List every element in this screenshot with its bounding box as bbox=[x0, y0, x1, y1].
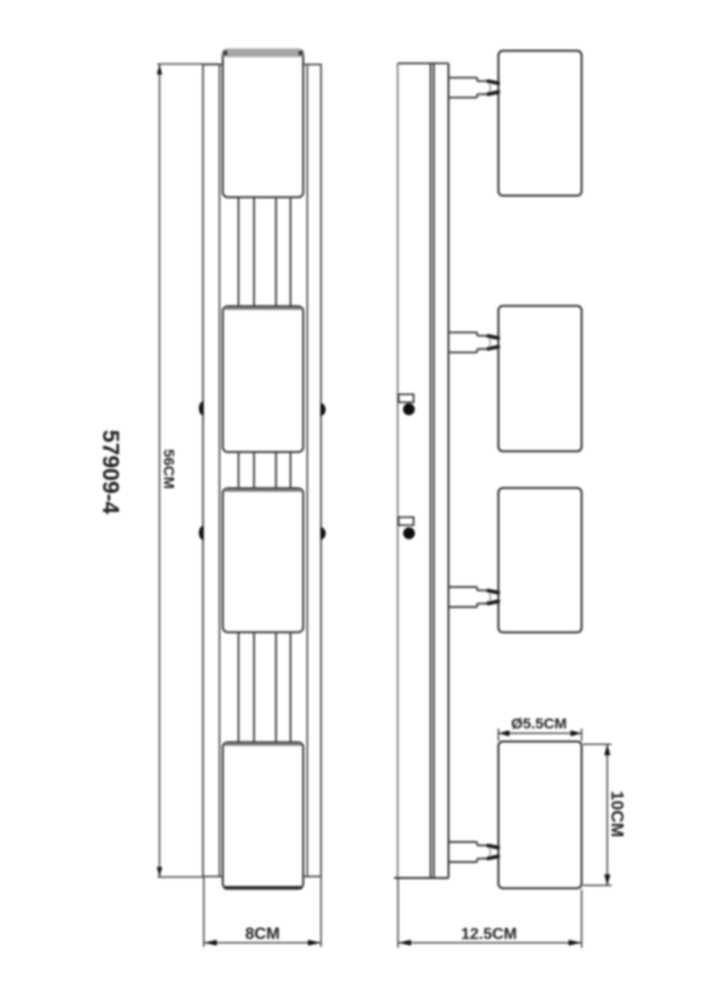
svg-text:12.5CM: 12.5CM bbox=[461, 926, 517, 943]
svg-text:10CM: 10CM bbox=[607, 791, 627, 838]
svg-text:57909-4: 57909-4 bbox=[98, 430, 124, 515]
svg-text:56CM: 56CM bbox=[160, 449, 177, 489]
svg-text:8CM: 8CM bbox=[245, 925, 280, 943]
svg-text:Ø5.5CM: Ø5.5CM bbox=[511, 716, 567, 733]
